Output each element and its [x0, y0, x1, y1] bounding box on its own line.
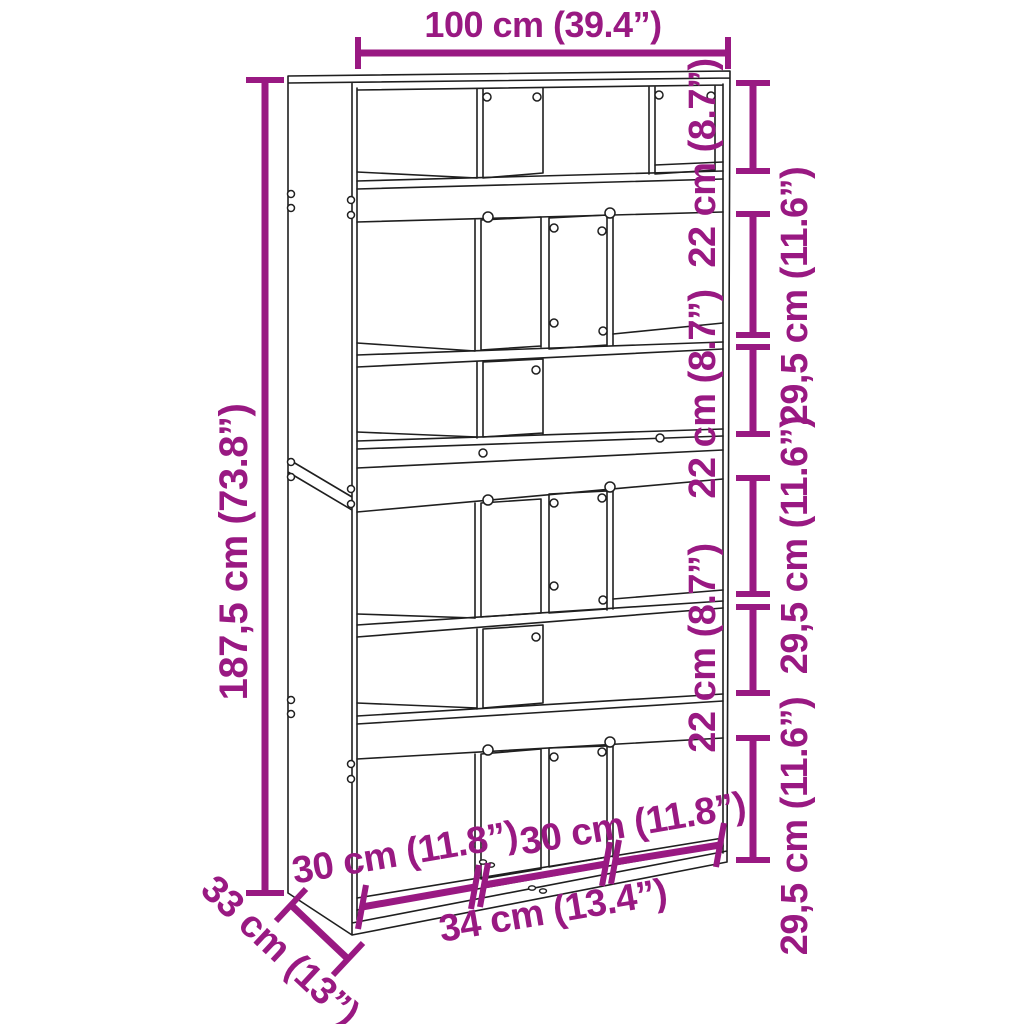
shelf-height-label-1: 22 cm (8.7”) [684, 58, 722, 267]
shelf-height-label-2: 29,5 cm (11.6”) [776, 167, 814, 426]
right-dimension-chain [736, 83, 770, 860]
shelf-height-label-6: 29,5 cm (11.6”) [776, 697, 814, 956]
furniture-dimension-diagram: 100 cm (39.4”) 187,5 cm (73.8”) 22 cm (8… [0, 0, 1024, 1024]
width-dimension-label: 100 cm (39.4”) [424, 7, 661, 43]
bookcase-line-drawing [0, 0, 1024, 1024]
height-dimension-label: 187,5 cm (73.8”) [214, 404, 254, 701]
shelf-height-label-5: 22 cm (8.7”) [684, 543, 722, 752]
shelf-height-label-4: 29,5 cm (11.6”) [776, 416, 814, 675]
shelf-height-label-3: 22 cm (8.7”) [684, 289, 722, 498]
